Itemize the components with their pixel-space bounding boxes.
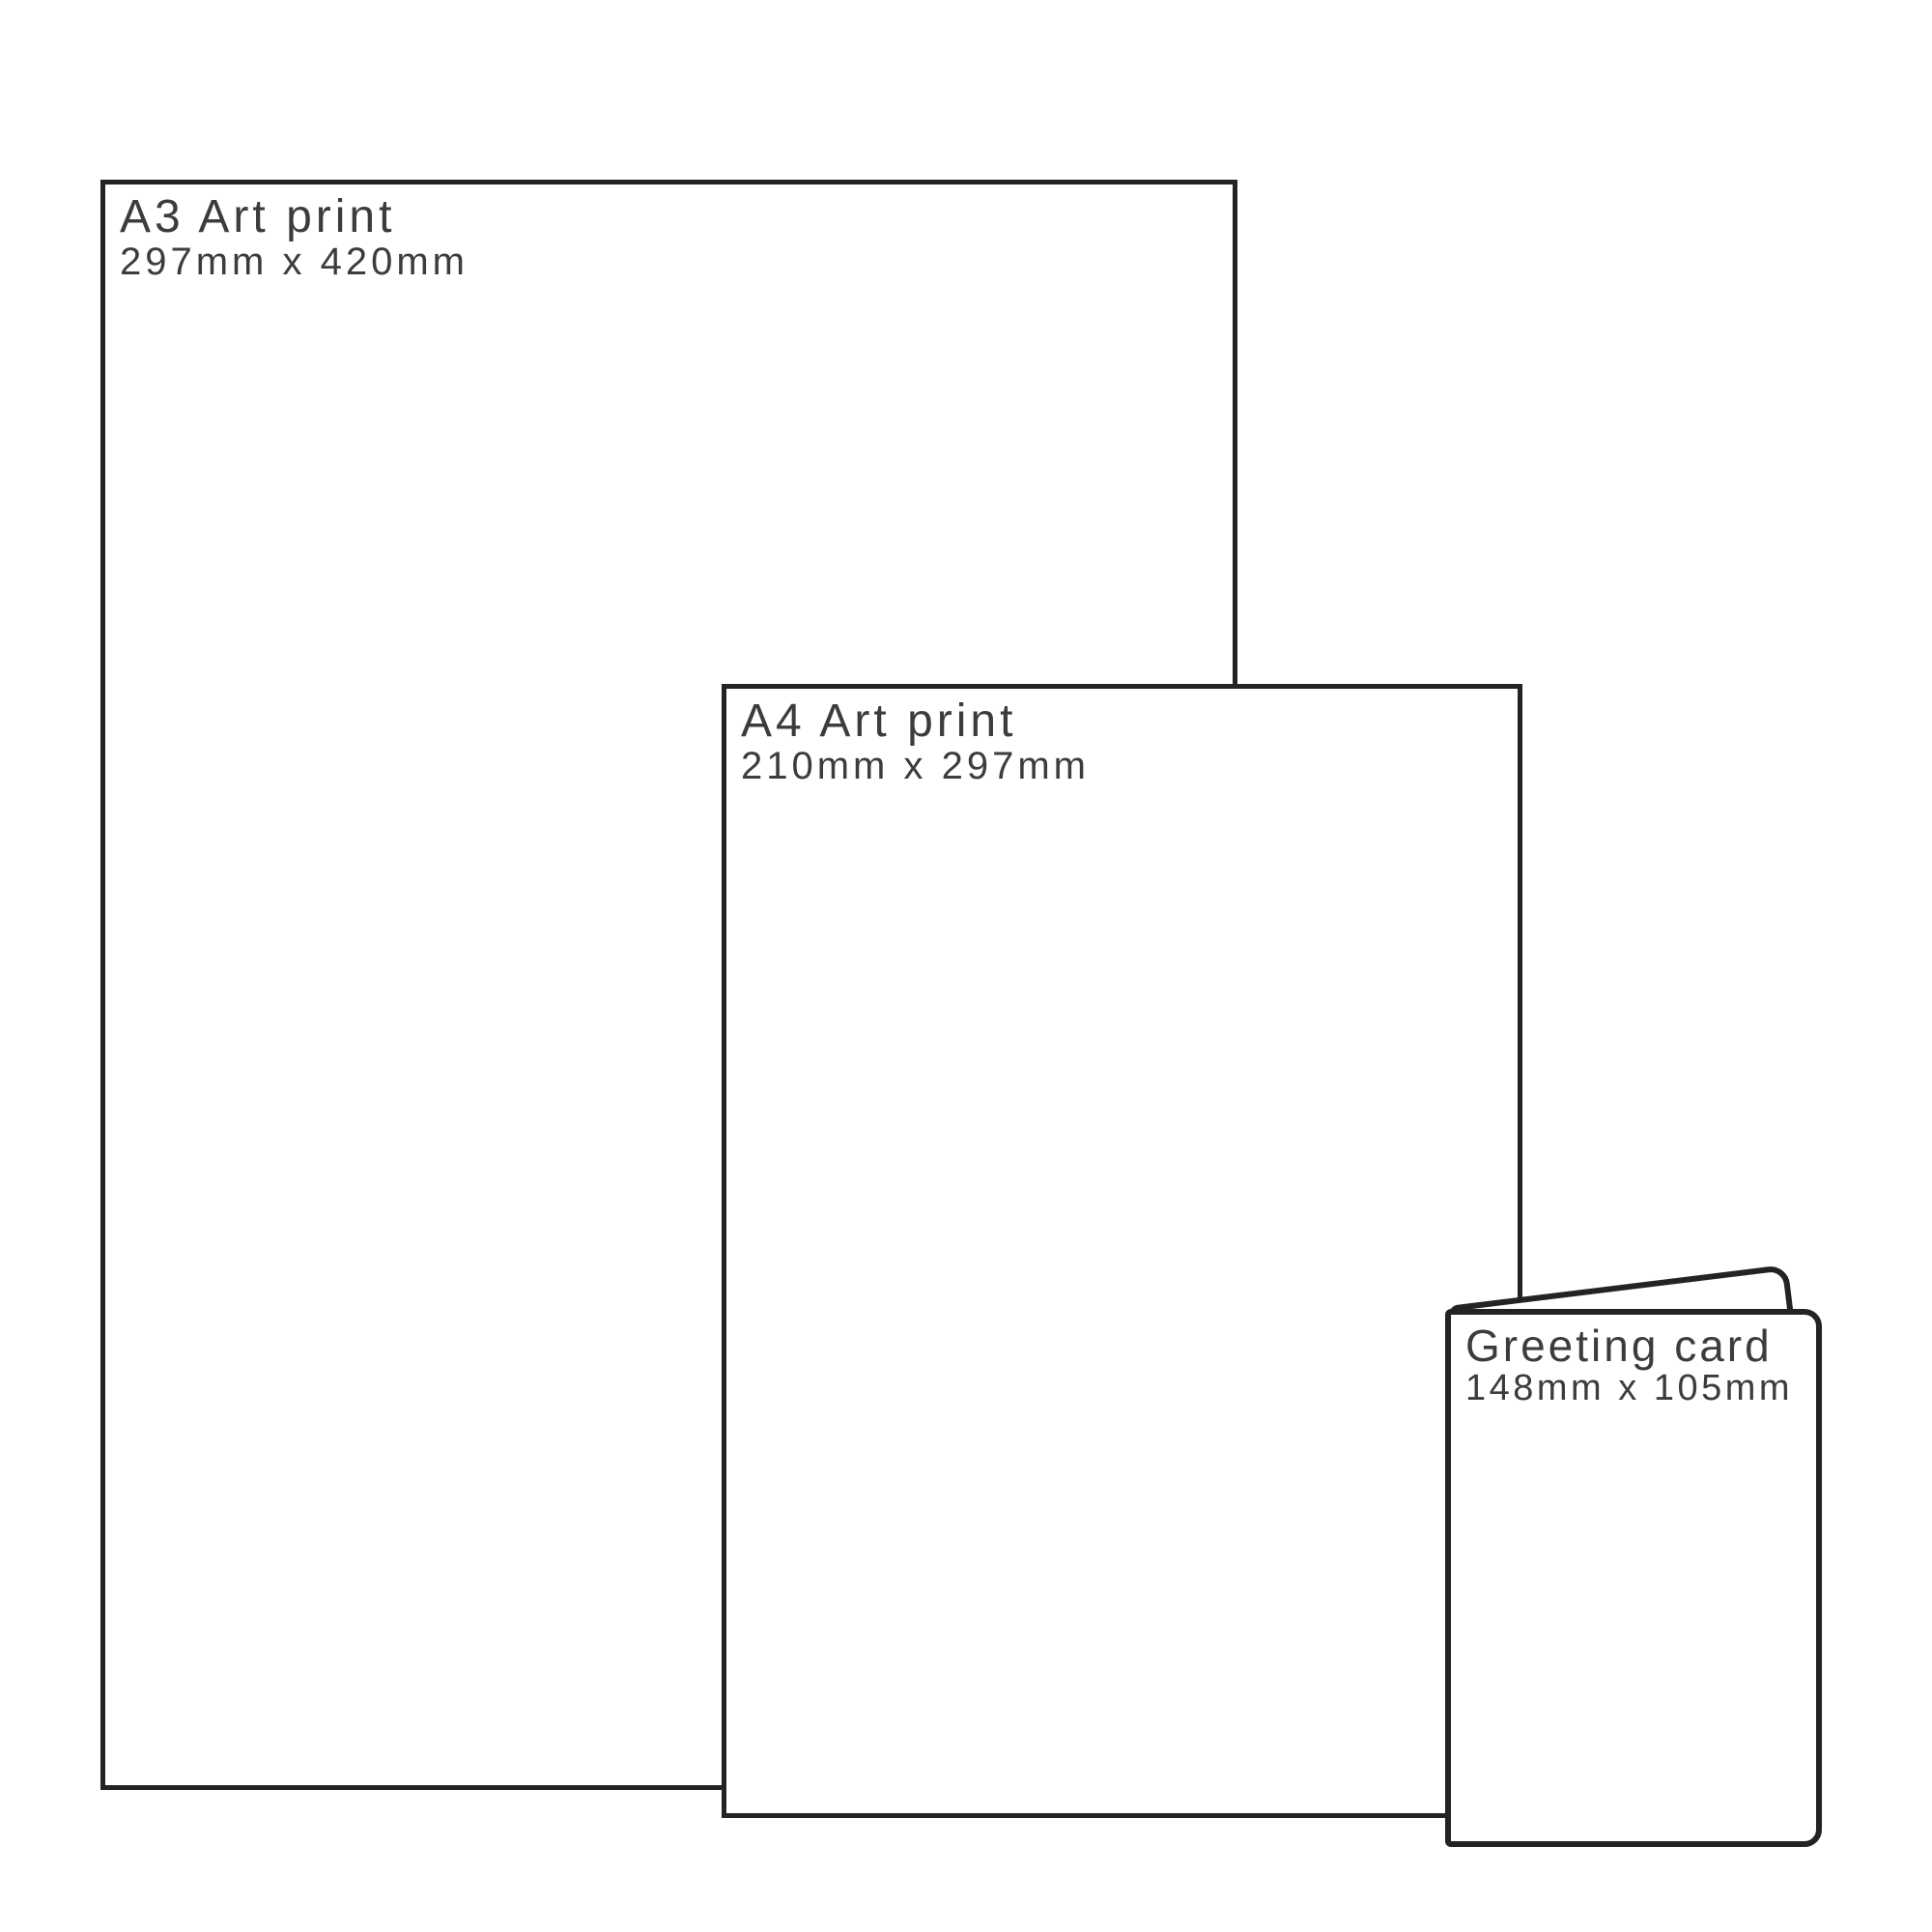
greeting-card-title: Greeting card [1465, 1322, 1793, 1369]
a4-title: A4 Art print [741, 697, 1090, 746]
a4-dimensions: 210mm x 297mm [741, 746, 1090, 787]
a4-label: A4 Art print 210mm x 297mm [741, 697, 1090, 788]
greeting-card-dimensions: 148mm x 105mm [1465, 1369, 1793, 1408]
a3-label: A3 Art print 297mm x 420mm [120, 193, 469, 284]
a3-dimensions: 297mm x 420mm [120, 241, 469, 283]
a4-sheet: A4 Art print 210mm x 297mm [722, 684, 1522, 1818]
greeting-card-front-page: Greeting card 148mm x 105mm [1445, 1309, 1822, 1847]
size-comparison-diagram: A3 Art print 297mm x 420mm A4 Art print … [0, 0, 1932, 1932]
greeting-card-label: Greeting card 148mm x 105mm [1465, 1322, 1793, 1408]
a3-title: A3 Art print [120, 193, 469, 241]
